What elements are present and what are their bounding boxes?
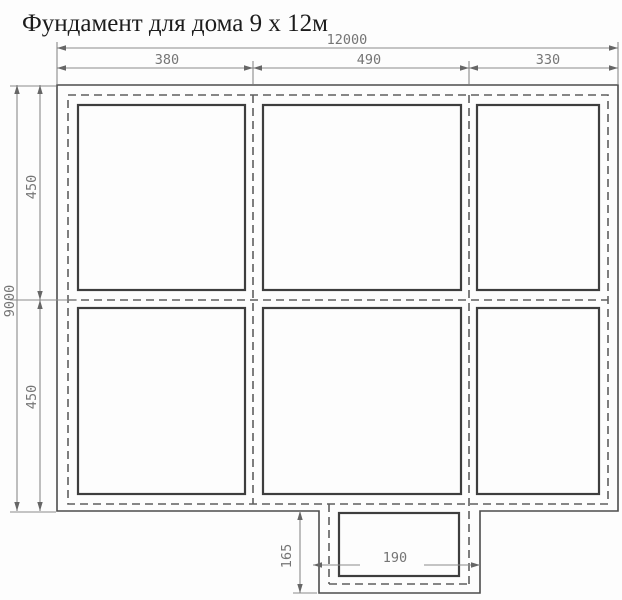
dim-label-left-segment-2: 450 [24,385,40,409]
dimension-arrow [37,300,42,309]
foundation-plan-drawing: Фундамент для дома 9 х 12м [0,0,622,600]
outer-wall-path [57,85,618,593]
dim-label-porch-depth: 165 [279,544,295,568]
dim-label-left-segment-1: 450 [24,175,40,199]
dim-label-top-segment-1: 380 [155,52,179,68]
foundation-plan-page: Фундамент для дома 9 х 12м [0,0,622,600]
dimension-arrow [57,45,66,50]
dimension-arrow [37,502,42,511]
dim-label-left-total: 9000 [2,285,18,318]
page-title: Фундамент для дома 9 х 12м [22,10,328,37]
dimension-arrow [469,65,478,70]
dimension-arrow [57,65,66,70]
dimension-arrow [313,562,322,567]
dimension-arrow [14,502,19,511]
outer-wall-outline [57,85,618,593]
cell-row2-col3 [477,308,599,494]
dimension-arrow [297,511,302,520]
dimension-arrow [297,584,302,593]
dim-label-top-segment-3: 330 [536,52,560,68]
cell-row2-col2 [263,308,461,494]
footing-cells [78,105,599,576]
dim-label-porch-width: 190 [383,550,407,566]
dimension-arrow [471,562,480,567]
cell-porch [339,513,459,576]
dimension-arrow [609,45,618,50]
dim-label-top-segment-2: 490 [357,52,381,68]
cell-row2-col1 [78,308,245,494]
cell-row1-col1 [78,105,245,290]
dim-label-top-total: 12000 [327,32,368,48]
dimension-arrow [460,65,469,70]
cell-row1-col2 [263,105,461,290]
dimension-arrow [253,65,262,70]
cell-row1-col3 [477,105,599,290]
dimension-arrow [609,65,618,70]
dimension-arrow [244,65,253,70]
dimension-arrow [37,291,42,300]
